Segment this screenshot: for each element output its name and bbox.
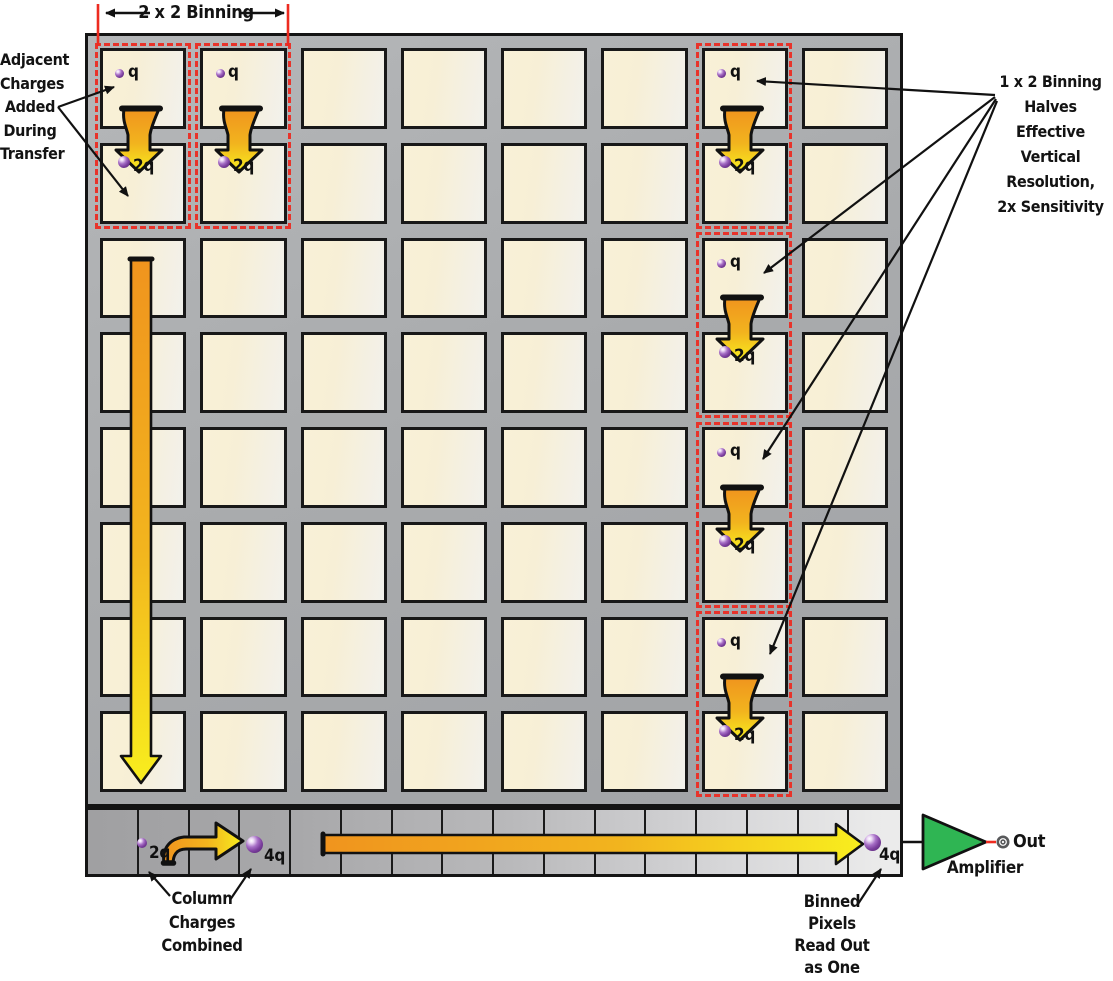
pixel-cell [501,427,587,508]
1x2-binning-label: 1 x 2 Binning Halves Effective Vertical … [988,69,1113,219]
pixel-cell [401,48,487,129]
out-label: Out [1013,832,1053,852]
pixel-cell [401,143,487,224]
pixel-cell [601,427,687,508]
pixel-cell [301,332,387,413]
long-right-arrow [320,822,866,866]
pixel-cell [200,617,286,698]
pixel-cell [601,617,687,698]
pixel-cell [301,711,387,792]
pixel-cell [200,332,286,413]
pixel-cell [200,238,286,319]
pixel-cell [802,522,888,603]
pixel-cell [802,238,888,319]
pixel-cell [401,427,487,508]
charge-dot-q [717,69,726,78]
charge-dot-2q [118,156,130,168]
pixel-cell [601,711,687,792]
adjacent-charges-label: Adjacent Charges Added During Transfer [0,48,60,166]
pixel-cell [802,143,888,224]
charge-dot-2q [218,156,230,168]
top-binning-label: 2 x 2 Binning [138,2,254,24]
pixel-cell [501,522,587,603]
pixel-cell [601,522,687,603]
charge-label: 2q [233,158,254,175]
pixel-cell [301,427,387,508]
pixel-cell [301,617,387,698]
register-cell [88,810,139,874]
column-charges-label: Column Charges Combined [146,887,258,958]
amplifier-label: Amplifier [938,859,1032,877]
pixel-cell [601,143,687,224]
output-terminal-icon [998,837,1008,847]
charge-label: 2q [734,537,755,554]
charge-dot-2q [719,346,731,358]
pixel-cell [501,332,587,413]
output-terminal-icon-inner [1001,840,1005,844]
charge-label: q [228,64,239,81]
charge-dot-q [216,69,225,78]
pixel-cell [301,522,387,603]
pixel-cell [401,332,487,413]
charge-dot-2q [719,725,731,737]
charge-label: 2q [734,158,755,175]
ccd-binning-diagram: q q q q q q 2q 2q 2q 2q 2q 2q 2q 4q 4q [0,0,1113,981]
charge-label: 2q [734,727,755,744]
pixel-cell [301,48,387,129]
pixel-cell [301,143,387,224]
pixel-cell [200,522,286,603]
charge-label: 2q [734,348,755,365]
pixel-cell [802,332,888,413]
pixel-cell [601,238,687,319]
charge-dot-q [717,638,726,647]
charge-label: 2q [133,158,154,175]
pixel-cell [802,48,888,129]
binned-pixels-label: Binned Pixels Read Out as One [778,891,886,979]
long-down-arrow [119,256,163,786]
charge-dot-4q [246,836,263,853]
pixel-cell [601,332,687,413]
pixel-cell [401,238,487,319]
pixel-cell [301,238,387,319]
pixel-cell [802,711,888,792]
pixel-cell [501,617,587,698]
pixel-cell [401,617,487,698]
charge-dot-2q [719,535,731,547]
pixel-cell [501,238,587,319]
pixel-cell [501,143,587,224]
charge-label: 4q [879,847,900,864]
charge-dot-2q [137,838,147,848]
pixel-cell [601,48,687,129]
charge-label: q [730,633,741,650]
pixel-cell [200,427,286,508]
charge-label: q [730,64,741,81]
pixel-cell [501,48,587,129]
pixel-cell [200,711,286,792]
pixel-cell [401,522,487,603]
pixel-cell [401,711,487,792]
pixel-cell [802,427,888,508]
charge-label: q [128,64,139,81]
charge-dot-q [717,448,726,457]
charge-label: 4q [264,848,285,865]
charge-label: q [730,443,741,460]
pixel-cell [501,711,587,792]
charge-dot-q [717,259,726,268]
charge-dot-q [115,69,124,78]
charge-dot-2q [719,156,731,168]
charge-label: 2q [149,845,170,862]
pixel-cell [802,617,888,698]
charge-label: q [730,254,741,271]
